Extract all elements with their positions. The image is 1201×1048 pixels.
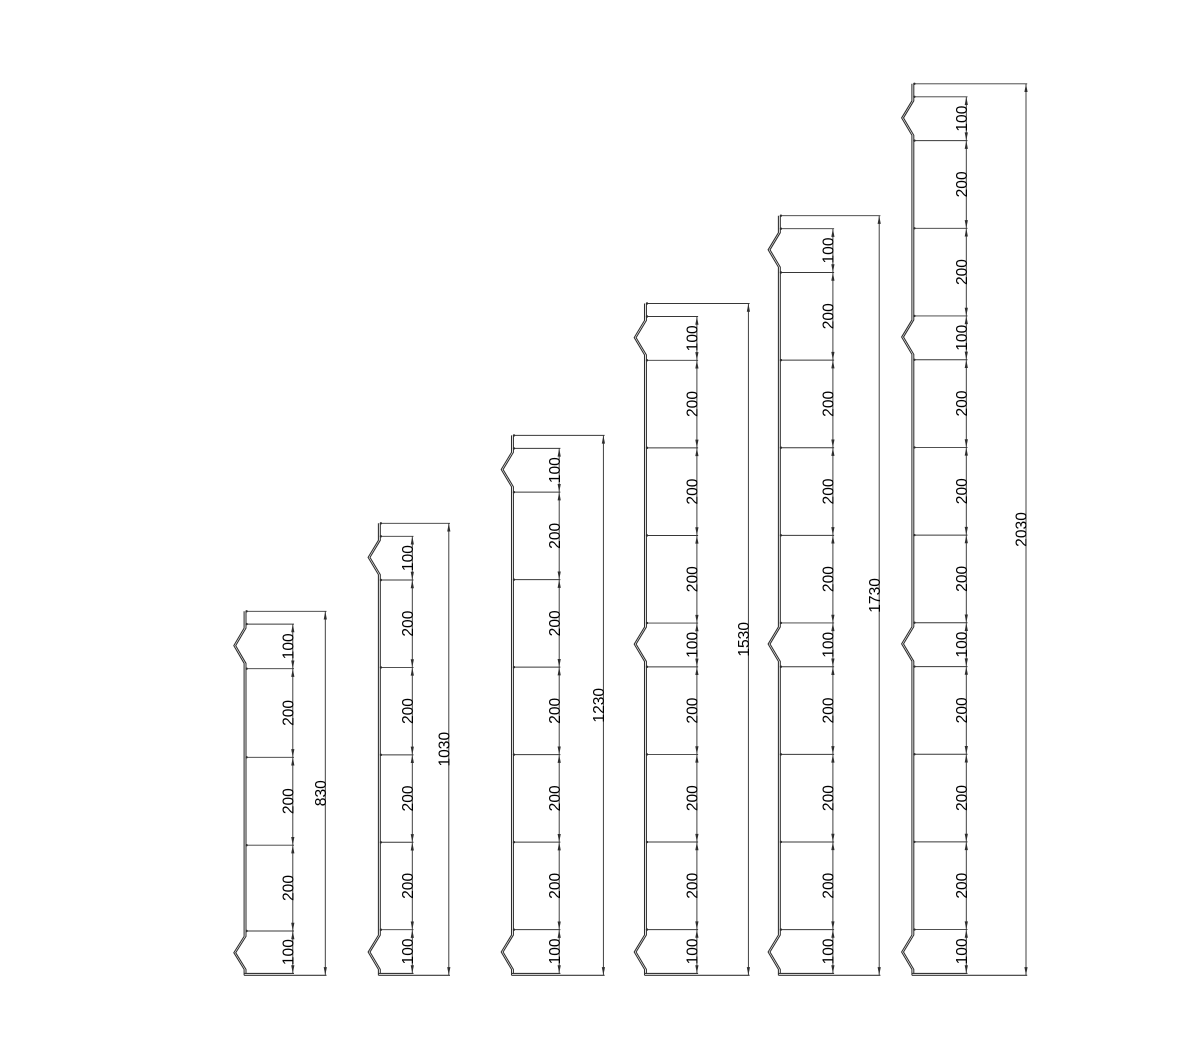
svg-text:200: 200 bbox=[821, 303, 838, 329]
svg-text:100: 100 bbox=[954, 938, 971, 964]
svg-text:200: 200 bbox=[954, 566, 971, 592]
svg-text:200: 200 bbox=[400, 610, 417, 636]
svg-text:200: 200 bbox=[685, 785, 702, 811]
svg-text:100: 100 bbox=[685, 632, 702, 658]
svg-text:100: 100 bbox=[400, 938, 417, 964]
svg-text:200: 200 bbox=[547, 522, 564, 548]
svg-text:200: 200 bbox=[281, 875, 298, 901]
svg-text:200: 200 bbox=[547, 610, 564, 636]
svg-text:100: 100 bbox=[400, 545, 417, 571]
svg-text:200: 200 bbox=[547, 872, 564, 898]
svg-text:100: 100 bbox=[954, 631, 971, 657]
svg-text:200: 200 bbox=[685, 566, 702, 592]
svg-text:830: 830 bbox=[313, 780, 330, 806]
svg-text:200: 200 bbox=[954, 872, 971, 898]
svg-text:200: 200 bbox=[400, 785, 417, 811]
svg-text:200: 200 bbox=[821, 566, 838, 592]
svg-text:200: 200 bbox=[954, 259, 971, 285]
svg-text:100: 100 bbox=[954, 324, 971, 350]
svg-text:100: 100 bbox=[281, 939, 298, 965]
svg-text:200: 200 bbox=[281, 700, 298, 726]
svg-text:200: 200 bbox=[821, 390, 838, 416]
svg-text:200: 200 bbox=[685, 391, 702, 417]
svg-text:200: 200 bbox=[821, 785, 838, 811]
svg-text:1030: 1030 bbox=[436, 732, 453, 767]
svg-text:200: 200 bbox=[821, 697, 838, 723]
svg-text:100: 100 bbox=[547, 457, 564, 483]
svg-text:200: 200 bbox=[821, 478, 838, 504]
svg-text:200: 200 bbox=[821, 872, 838, 898]
svg-text:200: 200 bbox=[954, 390, 971, 416]
svg-text:1530: 1530 bbox=[736, 622, 753, 657]
svg-text:100: 100 bbox=[821, 237, 838, 263]
svg-text:200: 200 bbox=[400, 698, 417, 724]
svg-text:2030: 2030 bbox=[1014, 512, 1031, 547]
svg-text:200: 200 bbox=[400, 873, 417, 899]
svg-text:1730: 1730 bbox=[867, 578, 884, 613]
svg-text:200: 200 bbox=[954, 785, 971, 811]
svg-text:100: 100 bbox=[685, 938, 702, 964]
svg-text:200: 200 bbox=[954, 697, 971, 723]
svg-text:200: 200 bbox=[547, 785, 564, 811]
svg-text:200: 200 bbox=[954, 171, 971, 197]
svg-text:200: 200 bbox=[685, 872, 702, 898]
svg-text:100: 100 bbox=[821, 631, 838, 657]
svg-text:100: 100 bbox=[685, 325, 702, 351]
svg-text:200: 200 bbox=[685, 697, 702, 723]
svg-text:100: 100 bbox=[821, 938, 838, 964]
svg-text:200: 200 bbox=[954, 478, 971, 504]
svg-text:100: 100 bbox=[547, 938, 564, 964]
svg-text:1230: 1230 bbox=[591, 688, 608, 723]
svg-text:200: 200 bbox=[685, 478, 702, 504]
svg-text:100: 100 bbox=[954, 105, 971, 131]
svg-text:100: 100 bbox=[281, 633, 298, 659]
svg-text:200: 200 bbox=[547, 697, 564, 723]
svg-text:200: 200 bbox=[281, 788, 298, 814]
